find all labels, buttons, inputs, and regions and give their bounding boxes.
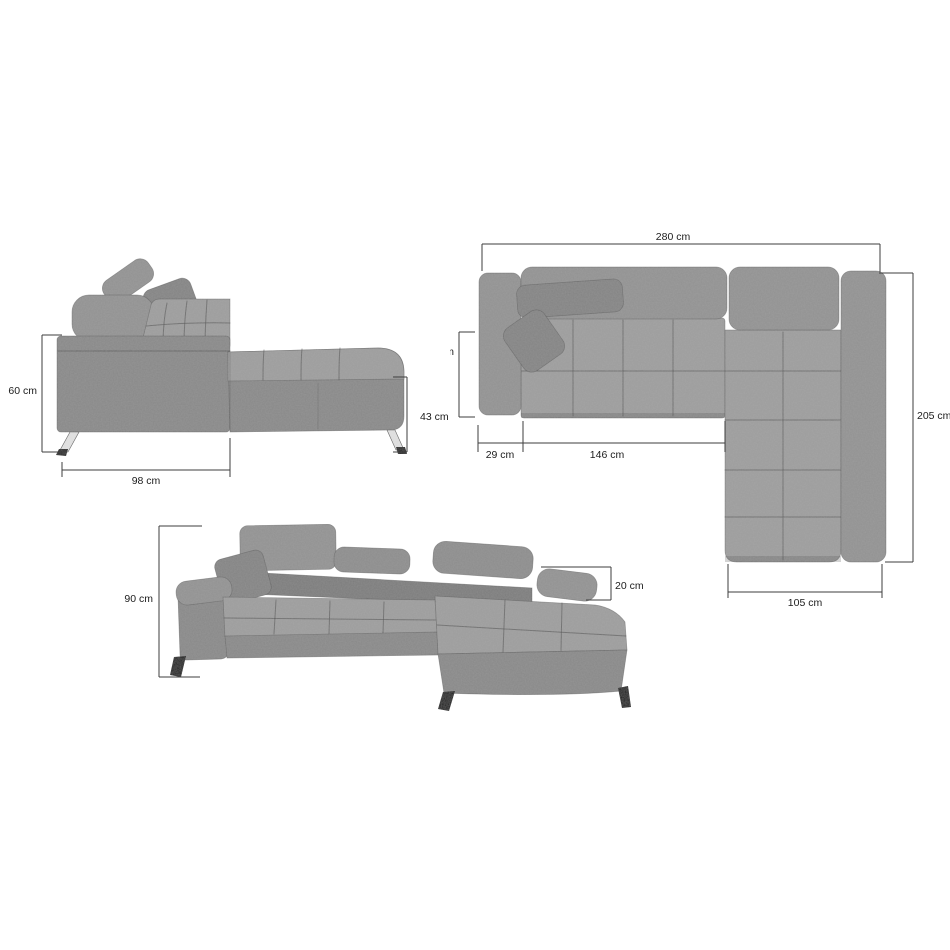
- chaise-cushion: [435, 596, 627, 654]
- side-view-sofa-drawing: [56, 255, 407, 456]
- headrest-cushion: [432, 541, 534, 580]
- dim-label-front-armrest-height: 20 cm: [615, 580, 644, 592]
- dim-label-top-seat-width: 146 cm: [590, 449, 625, 461]
- dim-label-side-chaise-height: 43 cm: [420, 411, 449, 423]
- sofa-dimension-diagram: 60 cm 98 cm 43 cm: [0, 0, 950, 950]
- black-leg: [618, 686, 631, 708]
- chaise-base: [438, 650, 627, 695]
- headrest-cushion: [334, 547, 411, 575]
- armrest-cushion: [72, 295, 154, 341]
- right-side-bolster: [841, 271, 886, 562]
- seat-base: [225, 632, 438, 658]
- dimension-side-height-60: 60 cm: [8, 335, 62, 452]
- leg-foot: [396, 447, 407, 454]
- back-cushion-right: [729, 267, 839, 330]
- dim-label-front-total-height: 90 cm: [124, 593, 153, 605]
- dim-label-top-total-depth: 205 cm: [917, 410, 950, 422]
- dim-label-side-height: 60 cm: [8, 385, 37, 397]
- dim-label-top-total-width: 280 cm: [656, 231, 691, 243]
- dimension-top-armrest-seat: 29 cm 146 cm: [478, 421, 725, 461]
- sofa-base: [57, 336, 230, 432]
- dimension-top-seat-depth-60: 60 cm: [450, 332, 475, 417]
- side-view-illustration: 60 cm 98 cm 43 cm: [0, 240, 470, 490]
- dim-label-side-base-length: 98 cm: [132, 475, 161, 487]
- dimension-top-chaise-105: 105 cm: [728, 564, 882, 609]
- dim-label-top-seat-depth: 60 cm: [450, 346, 454, 358]
- dimension-top-depth-205: 205 cm: [881, 273, 950, 562]
- black-leg: [170, 656, 186, 677]
- chaise-cushion: [228, 348, 404, 381]
- dimension-side-base-98: 98 cm: [62, 438, 230, 487]
- front-view-sofa-drawing: [170, 524, 631, 711]
- front-view-illustration: 90 cm 20 cm: [100, 495, 660, 755]
- dim-label-top-armrest-width: 29 cm: [486, 449, 515, 461]
- dim-label-top-chaise-width: 105 cm: [788, 597, 823, 609]
- right-armrest-pad: [536, 567, 599, 602]
- black-leg: [438, 691, 455, 711]
